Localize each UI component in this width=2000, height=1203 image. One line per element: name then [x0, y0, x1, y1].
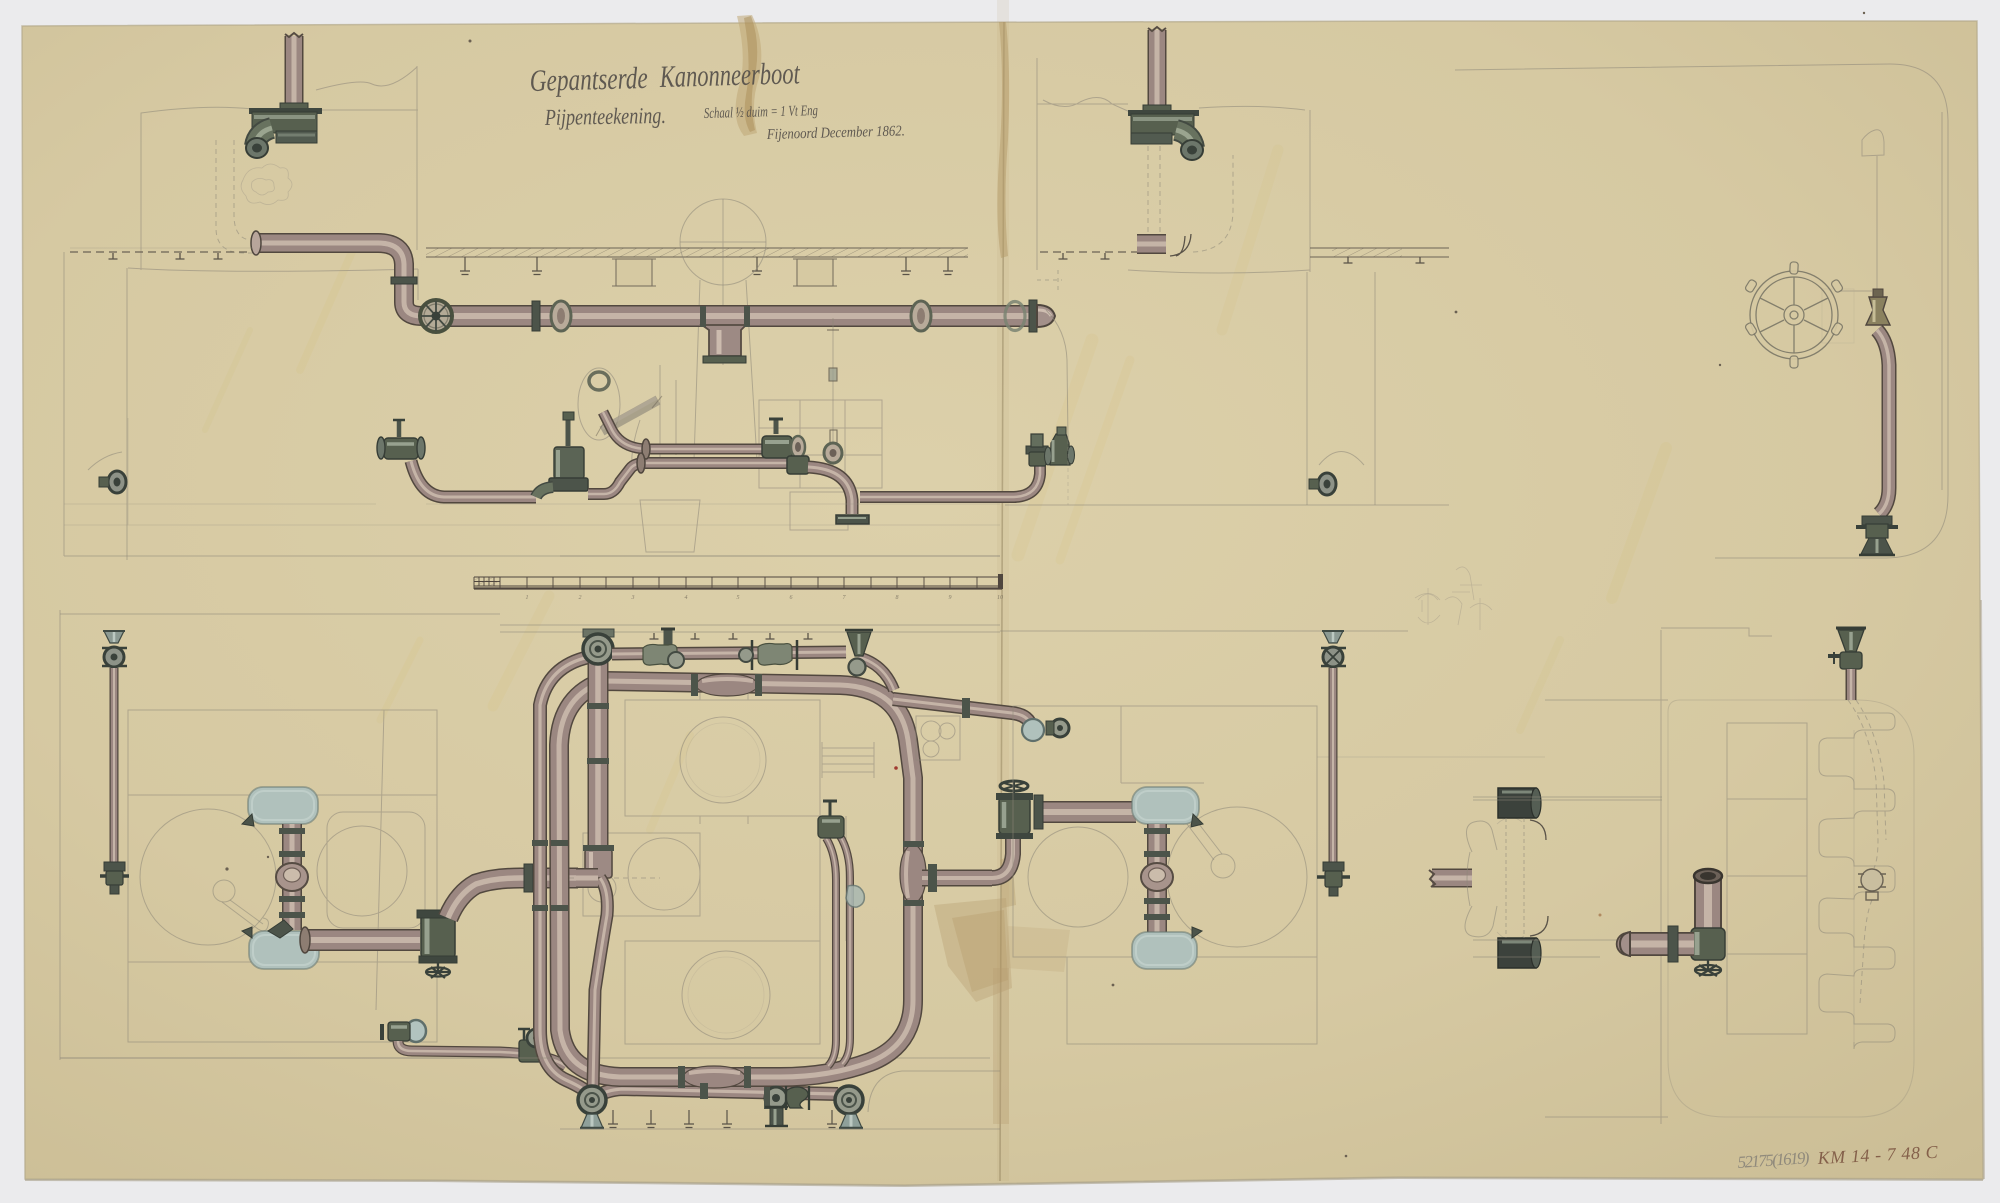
svg-text:5: 5	[737, 595, 740, 601]
svg-text:3: 3	[631, 595, 635, 601]
svg-text:6: 6	[790, 595, 793, 601]
svg-text:Gepantserde: Gepantserde	[529, 60, 648, 98]
svg-text:Kanonneerboot: Kanonneerboot	[659, 55, 802, 94]
svg-text:10: 10	[997, 595, 1003, 601]
svg-text:2: 2	[579, 595, 582, 601]
svg-text:Schaal ½ duim = 1 Vt Eng: Schaal ½ duim = 1 Vt Eng	[704, 103, 819, 122]
svg-text:9: 9	[949, 595, 952, 601]
svg-text:Pijpenteekening.: Pijpenteekening.	[544, 103, 666, 130]
svg-text:4: 4	[685, 594, 688, 601]
svg-text:8: 8	[896, 595, 899, 601]
svg-text:1: 1	[526, 595, 529, 601]
